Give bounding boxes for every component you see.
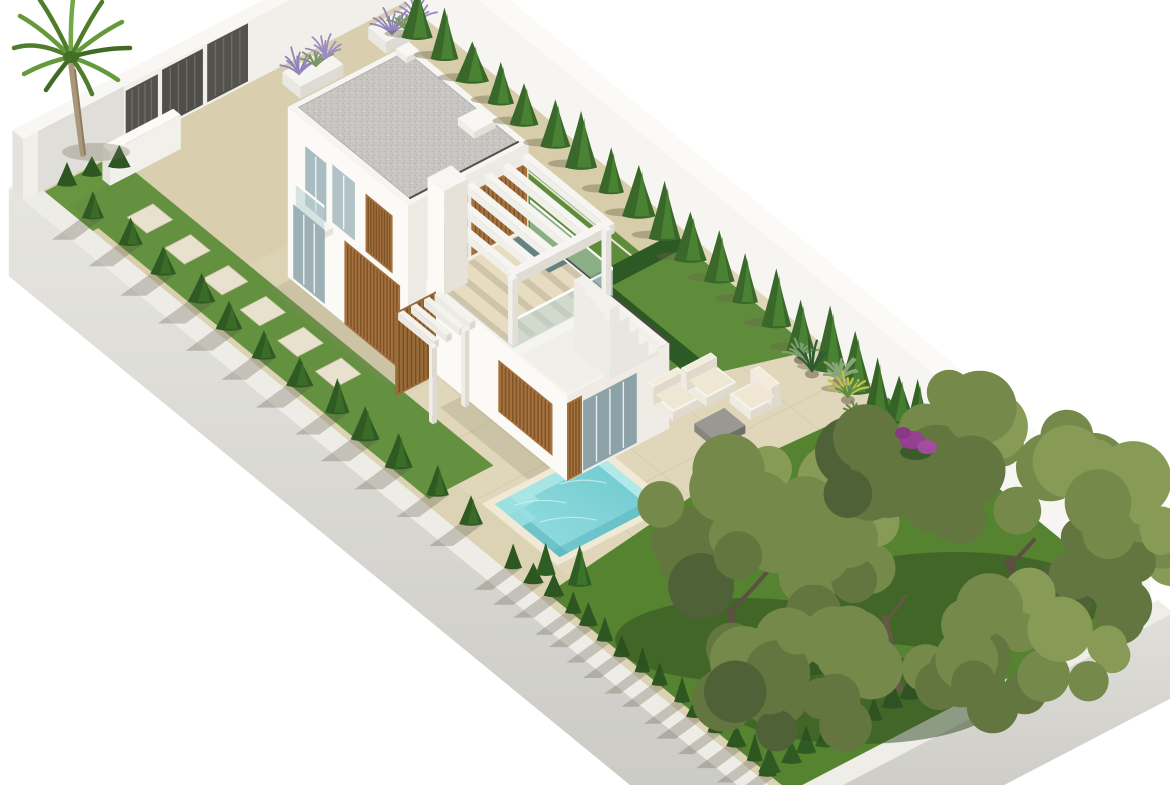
annex-pergola-post [465, 329, 469, 407]
18 [1049, 550, 1099, 600]
bougainvillea [917, 440, 937, 454]
pergola-post [606, 229, 611, 298]
18 [1082, 506, 1135, 559]
annex-wood-slats [567, 395, 582, 481]
annex-pergola-post [429, 345, 433, 424]
20 [1028, 597, 1093, 662]
chimney [428, 178, 445, 296]
bougainvillea [895, 427, 911, 439]
annex-pergola-post [461, 329, 465, 408]
30 [933, 492, 986, 545]
30 [824, 469, 873, 518]
30 [927, 370, 972, 415]
22 [704, 661, 766, 723]
chimney [444, 179, 468, 295]
22 [776, 614, 817, 655]
22 [819, 699, 872, 752]
annex-pergola-post [433, 346, 437, 424]
26 [783, 517, 851, 585]
pergola-post [513, 278, 518, 347]
20 [951, 660, 996, 705]
20 [1068, 661, 1108, 701]
26 [638, 481, 685, 528]
villa-aerial-render [0, 0, 1170, 785]
20 [1087, 625, 1127, 665]
26 [714, 531, 762, 579]
property-render-figure [0, 0, 1170, 785]
22 [756, 710, 798, 752]
pergola-post [602, 228, 607, 298]
wall-nw-endcap [12, 130, 23, 201]
pergola-post [508, 277, 512, 347]
palm-crown [63, 51, 79, 63]
30 [851, 418, 897, 464]
palm-shadow [62, 143, 130, 161]
